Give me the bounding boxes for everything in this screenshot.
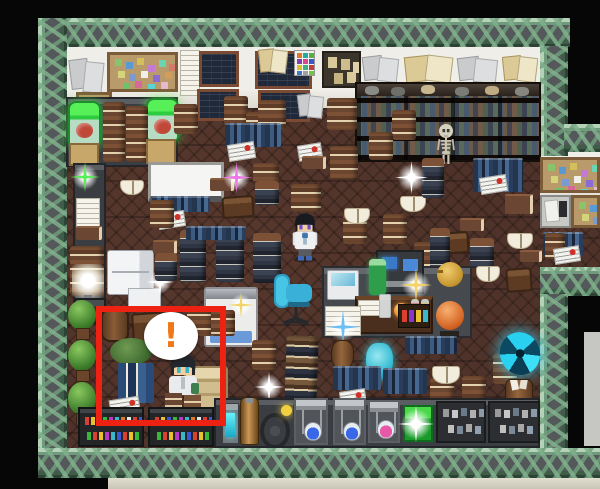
highlight-rectangle[interactable] (96, 306, 226, 426)
sparkle (398, 406, 434, 442)
book-flat (302, 156, 326, 169)
kettle (437, 262, 463, 287)
potion-row (398, 304, 430, 328)
specimen-jar (68, 101, 101, 146)
bottle-green (369, 259, 386, 295)
alchemy-station (368, 400, 400, 443)
book-stack (392, 110, 416, 140)
papers-tan (502, 54, 538, 84)
book-stack (252, 340, 276, 370)
sparkle (395, 161, 428, 194)
papers-tan (403, 53, 455, 85)
wheel-device (258, 401, 293, 446)
alcove-corkboard-2 (571, 195, 600, 228)
desk-papers (540, 195, 571, 228)
crate (146, 139, 176, 164)
table-brown (221, 195, 254, 219)
books-row-blue (333, 366, 381, 390)
papers-gray (455, 55, 500, 85)
corkboard-large (107, 52, 178, 92)
books-row-blue (186, 226, 246, 240)
sparkle (221, 162, 252, 193)
alcove-corkboard (540, 157, 600, 193)
alchemy-station (294, 398, 328, 445)
book-flat (153, 240, 177, 254)
paper-white (76, 198, 100, 228)
sparkle (70, 162, 100, 192)
open-book (400, 196, 426, 212)
book-stack (174, 104, 198, 134)
papers-gray (296, 92, 324, 120)
scientist-character[interactable] (288, 211, 322, 263)
book-stack (383, 214, 407, 244)
books-row-blue (405, 336, 457, 354)
book-stack (126, 106, 148, 162)
book-stack-dark (155, 253, 177, 281)
table-brown (505, 267, 533, 293)
wall-papers-gray (68, 56, 106, 96)
tree-bush (66, 300, 98, 340)
book-stack (327, 98, 357, 130)
book-stack-dark (470, 238, 494, 268)
book-stack (103, 102, 125, 162)
book-flat (505, 194, 533, 214)
sparkle (400, 268, 432, 302)
shelf-gray (488, 401, 540, 443)
book-stack (224, 96, 248, 126)
book-stack (291, 184, 321, 212)
book-stack (150, 200, 174, 228)
game-viewport: ! (0, 0, 600, 489)
open-book (120, 180, 144, 195)
book-flat (520, 250, 542, 262)
sparkle (326, 310, 360, 344)
book-stack (253, 163, 279, 183)
blackboard (199, 51, 239, 87)
newspaper (553, 245, 581, 265)
tree-bush (66, 340, 98, 382)
office-chair (272, 272, 316, 326)
book-flat (76, 226, 102, 240)
open-book (432, 366, 460, 384)
pot-orange (432, 298, 467, 338)
book-stack (369, 132, 393, 160)
books-row-blue (383, 368, 427, 394)
tank-brass (240, 397, 259, 445)
papers-gray (361, 54, 401, 85)
glass (379, 294, 391, 318)
newspaper (227, 141, 256, 162)
shelf-gray (436, 401, 486, 443)
paper-white (358, 300, 380, 316)
open-book (476, 266, 500, 282)
scene-items: ! (0, 0, 600, 489)
book-stack (330, 146, 358, 180)
book-stack-dark (255, 181, 279, 205)
open-book (507, 233, 533, 249)
papers-tan (258, 47, 288, 75)
book-flat (460, 218, 484, 231)
alchemy-station (333, 398, 366, 445)
color-chart (294, 50, 315, 76)
